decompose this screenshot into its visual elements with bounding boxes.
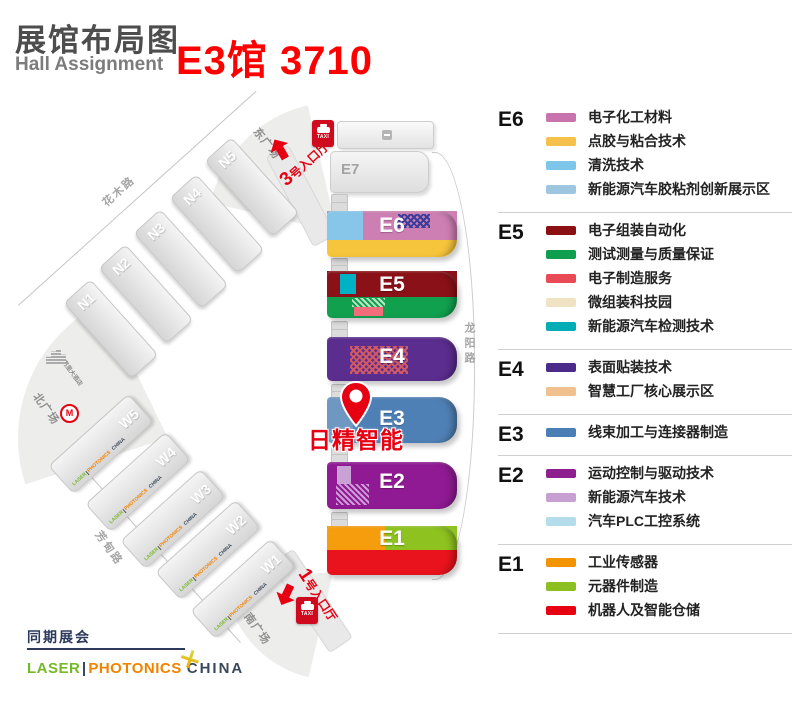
hall-e1-red-band bbox=[327, 550, 457, 575]
hall-e5-main-band: E5 bbox=[327, 271, 457, 297]
legend-label: 清洗技术 bbox=[588, 155, 644, 175]
legend-row: 新能源汽车技术 bbox=[546, 490, 792, 504]
legend-row: 智慧工厂核心展示区 bbox=[546, 384, 792, 398]
legend-row: 微组装科技园 bbox=[546, 295, 792, 309]
legend-section-id: E5 bbox=[498, 223, 546, 343]
hall-e5-green-band bbox=[327, 297, 457, 318]
legend-label: 微组装科技园 bbox=[588, 292, 672, 312]
hall-e7: E7 bbox=[330, 151, 429, 193]
legend-label: 元器件制造 bbox=[588, 576, 658, 596]
legend-swatch bbox=[546, 493, 576, 502]
hall-w4-label: W4 bbox=[153, 444, 179, 470]
legend-swatch bbox=[546, 558, 576, 567]
legend-label: 运动控制与驱动技术 bbox=[588, 463, 714, 483]
hall-w3-label: W3 bbox=[188, 481, 214, 507]
legend-row: 运动控制与驱动技术 bbox=[546, 466, 792, 480]
hall-w1-label: W1 bbox=[258, 551, 284, 577]
legend-label: 新能源汽车胶粘剂创新展示区 bbox=[588, 179, 770, 199]
hall-e2-main-band: E2 bbox=[327, 462, 457, 509]
legend-swatch bbox=[546, 274, 576, 283]
legend-swatch bbox=[546, 250, 576, 259]
legend-section-id: E6 bbox=[498, 110, 546, 206]
logo-divider bbox=[83, 662, 85, 676]
legend-row: 电子化工材料 bbox=[546, 110, 792, 124]
legend-items: 表面贴装技术 智慧工厂核心展示区 bbox=[546, 360, 792, 408]
legend-label: 新能源汽车技术 bbox=[588, 487, 686, 507]
legend-section-e4: E4 表面贴装技术 智慧工厂核心展示区 bbox=[498, 350, 792, 415]
station-building bbox=[337, 121, 434, 149]
station-icon bbox=[382, 130, 392, 140]
legend-items: 运动控制与驱动技术 新能源汽车技术 汽车PLC工控系统 bbox=[546, 466, 792, 538]
hall-e2: E2 bbox=[327, 462, 457, 509]
hall-e5: E5 bbox=[327, 271, 457, 318]
legend-label: 电子组装自动化 bbox=[588, 220, 686, 240]
legend-row: 元器件制造 bbox=[546, 579, 792, 593]
legend-items: 工业传感器 元器件制造 机器人及智能仓储 bbox=[546, 555, 792, 627]
legend-row: 汽车PLC工控系统 bbox=[546, 514, 792, 528]
legend-label: 新能源汽车检测技术 bbox=[588, 316, 714, 336]
legend-section-e5: E5 电子组装自动化 测试测量与质量保证 电子制造服务 微组装科技园 新能源汽车… bbox=[498, 213, 792, 350]
legend-swatch bbox=[546, 582, 576, 591]
legend-label: 机器人及智能仓储 bbox=[588, 600, 700, 620]
legend-swatch bbox=[546, 322, 576, 331]
legend-items: 电子组装自动化 测试测量与质量保证 电子制造服务 微组装科技园 新能源汽车检测技… bbox=[546, 223, 792, 343]
legend-section-id: E1 bbox=[498, 555, 546, 627]
legend-row: 表面贴装技术 bbox=[546, 360, 792, 374]
legend-row: 工业传感器 bbox=[546, 555, 792, 569]
hall-e6: E6 bbox=[327, 211, 457, 257]
legend-section-id: E3 bbox=[498, 425, 546, 449]
legend-row: 点胶与粘合技术 bbox=[546, 134, 792, 148]
legend-swatch bbox=[546, 363, 576, 372]
hall-e4: E4 bbox=[327, 337, 457, 381]
hall-e2-label: E2 bbox=[327, 470, 457, 494]
legend-swatch bbox=[546, 113, 576, 122]
hall-e5-rose-zone bbox=[354, 307, 383, 316]
logo-photonics: PHOTONICS bbox=[88, 660, 181, 677]
legend-items: 线束加工与连接器制造 bbox=[546, 425, 792, 449]
hall-e4-label: E4 bbox=[327, 345, 457, 369]
taxi-label: TAXI bbox=[317, 134, 329, 140]
legend-swatch bbox=[546, 161, 576, 170]
legend-label: 智慧工厂核心展示区 bbox=[588, 381, 714, 401]
hall-e1-top-band: E1 bbox=[327, 526, 457, 550]
hall-e4-main-band: E4 bbox=[327, 337, 457, 381]
legend-section-e2: E2 运动控制与驱动技术 新能源汽车技术 汽车PLC工控系统 bbox=[498, 456, 792, 545]
legend-section-id: E4 bbox=[498, 360, 546, 408]
hall-w5-label: W5 bbox=[116, 406, 142, 432]
hall-e1-label: E1 bbox=[327, 527, 457, 551]
logo-laser: LASER bbox=[27, 660, 80, 677]
legend-section-e3: E3 线束加工与连接器制造 bbox=[498, 415, 792, 456]
legend-label: 线束加工与连接器制造 bbox=[588, 422, 728, 442]
legend-row: 电子制造服务 bbox=[546, 271, 792, 285]
legend-label: 汽车PLC工控系统 bbox=[588, 511, 700, 531]
legend-swatch-hatched bbox=[546, 298, 576, 307]
legend-label: 电子化工材料 bbox=[588, 107, 672, 127]
legend-row: 测试测量与质量保证 bbox=[546, 247, 792, 261]
legend-swatch-hatched bbox=[546, 387, 576, 396]
taxi-label: TAXI bbox=[301, 611, 313, 617]
legend-label: 电子制造服务 bbox=[588, 268, 672, 288]
hall-e5-label: E5 bbox=[327, 273, 457, 297]
legend-swatch-hatched bbox=[546, 517, 576, 526]
taxi-icon: TAXI bbox=[296, 597, 318, 624]
hall-e7-label: E7 bbox=[341, 161, 359, 178]
legend-row: 线束加工与连接器制造 bbox=[546, 425, 792, 439]
metro-icon: M bbox=[60, 404, 79, 423]
legend-section-e1: E1 工业传感器 元器件制造 机器人及智能仓储 bbox=[498, 545, 792, 634]
legend-label: 表面贴装技术 bbox=[588, 357, 672, 377]
taxi-icon: TAXI bbox=[312, 120, 334, 147]
concurrent-show-title: 同期展会 bbox=[27, 627, 91, 647]
hall-n4-label: N4 bbox=[180, 185, 204, 209]
hall-legend: E6 电子化工材料 点胶与粘合技术 清洗技术 新能源汽车胶粘剂创新展示区 E5 … bbox=[498, 106, 792, 634]
hall-e6-label: E6 bbox=[327, 214, 457, 238]
exhibitor-name: 日精智能 bbox=[294, 421, 418, 455]
legend-swatch bbox=[546, 606, 576, 615]
legend-swatch bbox=[546, 226, 576, 235]
legend-row: 清洗技术 bbox=[546, 158, 792, 172]
taxi-car-glyph bbox=[301, 604, 314, 610]
page-subtitle: Hall Assignment bbox=[15, 54, 163, 76]
concurrent-underline bbox=[27, 648, 185, 650]
booth-highlight: E3馆 3710 bbox=[176, 28, 373, 86]
legend-swatch-hatched bbox=[546, 185, 576, 194]
legend-swatch bbox=[546, 469, 576, 478]
hall-n1-label: N1 bbox=[74, 290, 98, 314]
road-label-huamu: 花木路 bbox=[99, 172, 139, 210]
laser-photonics-china-logo: LASER PHOTONICS CHINA bbox=[27, 660, 244, 677]
hall-n5-label: N5 bbox=[215, 148, 239, 172]
hall-n2-label: N2 bbox=[109, 255, 133, 279]
legend-section-id: E2 bbox=[498, 466, 546, 538]
road-label-longyang: 龙阳路 bbox=[461, 322, 477, 367]
hall-w2-label: W2 bbox=[223, 512, 249, 538]
hall-e5-hatch-zone bbox=[352, 298, 385, 307]
hall-e6-yellow-band bbox=[327, 240, 457, 257]
legend-items: 电子化工材料 点胶与粘合技术 清洗技术 新能源汽车胶粘剂创新展示区 bbox=[546, 110, 792, 206]
hall-e1: E1 bbox=[327, 526, 457, 575]
hall-assignment-page: 展馆布局图 Hall Assignment E3馆 3710 花木路 芳甸路 龙… bbox=[0, 0, 800, 706]
legend-label: 测试测量与质量保证 bbox=[588, 244, 714, 264]
legend-row: 新能源汽车检测技术 bbox=[546, 319, 792, 333]
hall-n3-label: N3 bbox=[144, 220, 168, 244]
hall-e6-main-band: E6 bbox=[327, 211, 457, 240]
legend-swatch bbox=[546, 428, 576, 437]
legend-label: 工业传感器 bbox=[588, 552, 658, 572]
legend-row: 新能源汽车胶粘剂创新展示区 bbox=[546, 182, 792, 196]
taxi-car-glyph bbox=[317, 127, 330, 133]
legend-label: 点胶与粘合技术 bbox=[588, 131, 686, 151]
legend-swatch bbox=[546, 137, 576, 146]
legend-row: 电子组装自动化 bbox=[546, 223, 792, 237]
legend-section-e6: E6 电子化工材料 点胶与粘合技术 清洗技术 新能源汽车胶粘剂创新展示区 bbox=[498, 106, 792, 213]
legend-row: 机器人及智能仓储 bbox=[546, 603, 792, 617]
